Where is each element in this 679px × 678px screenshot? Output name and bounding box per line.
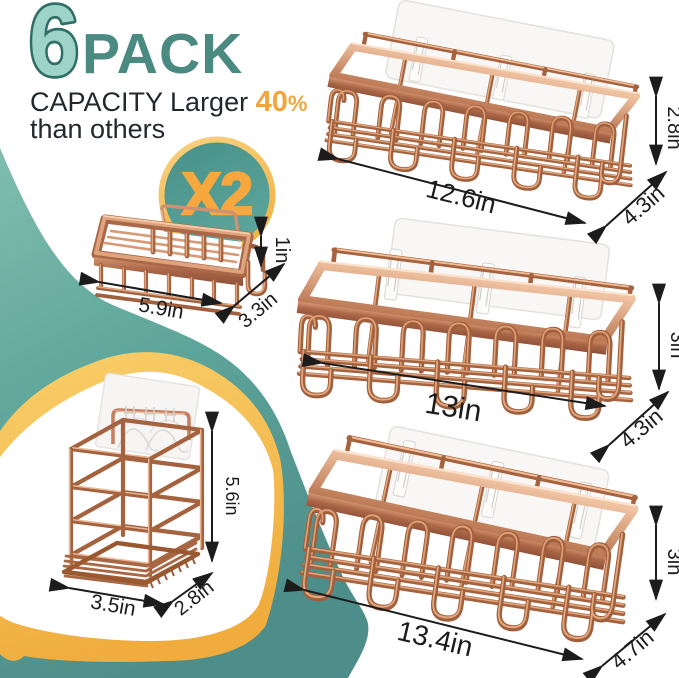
svg-text:than others: than others (30, 114, 165, 144)
svg-text:3in: 3in (666, 332, 679, 359)
svg-text:X2: X2 (182, 161, 252, 227)
svg-text:5.6in: 5.6in (222, 476, 242, 515)
svg-text:3in: 3in (663, 549, 679, 576)
svg-text:PACK: PACK (82, 22, 243, 86)
svg-text:1in: 1in (271, 237, 293, 264)
svg-text:6: 6 (29, 0, 79, 97)
svg-text:2.8in: 2.8in (663, 106, 679, 149)
